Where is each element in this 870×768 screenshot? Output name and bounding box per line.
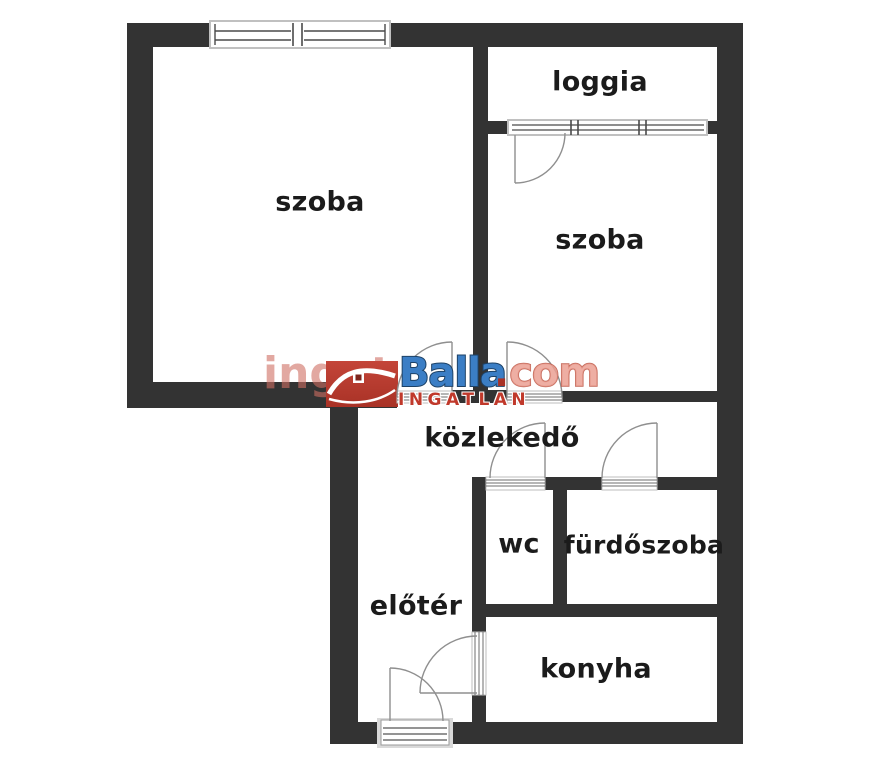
house-swoosh-icon [326, 361, 398, 407]
wall-stub-wc-furdo [545, 477, 602, 490]
watermark-brand: Balla [399, 353, 506, 393]
wall-lower-left-outer [330, 382, 358, 743]
room-label-szoba-1: szoba [275, 187, 364, 218]
wall-stub-right-of-furdo-door [657, 477, 717, 490]
wall-konyha-top [472, 604, 717, 617]
wall-bottom-left-of-entrance [330, 722, 381, 744]
wall-bottom-right-of-entrance [449, 722, 743, 744]
room-label-szoba-2: szoba [555, 225, 644, 256]
room-label-kozlekedo: közlekedő [424, 423, 579, 454]
wall-wc-left-lower [472, 695, 486, 722]
watermark-logo [326, 361, 398, 407]
room-label-wc: wc [498, 529, 540, 560]
wall-top-right-of-window [390, 23, 743, 47]
wall-loggia-stub-left [488, 121, 510, 134]
door-konyha [420, 632, 486, 695]
room-label-konyha: konyha [540, 654, 652, 685]
door-entrance [377, 668, 453, 748]
room-label-eloter: előtér [370, 591, 462, 622]
wall-loggia-stub-right [705, 121, 717, 134]
watermark-suffix: com [509, 353, 599, 393]
watermark-subtitle: INGATLAN [398, 392, 530, 409]
door-balcony [515, 133, 565, 183]
wall-left-outer [127, 23, 153, 408]
watermark-dot: . [494, 353, 509, 393]
room-label-loggia: loggia [552, 67, 648, 98]
window-szoba1 [210, 21, 390, 48]
wall-szoba-divider [473, 45, 488, 391]
floor-plan: ingat [0, 0, 870, 768]
wall-right-outer [717, 23, 743, 743]
door-furdoszoba [602, 423, 657, 490]
room-label-furdoszoba: fürdőszoba [564, 531, 724, 560]
watermark-domain: .com [494, 353, 599, 393]
window-loggia-band [508, 120, 707, 135]
